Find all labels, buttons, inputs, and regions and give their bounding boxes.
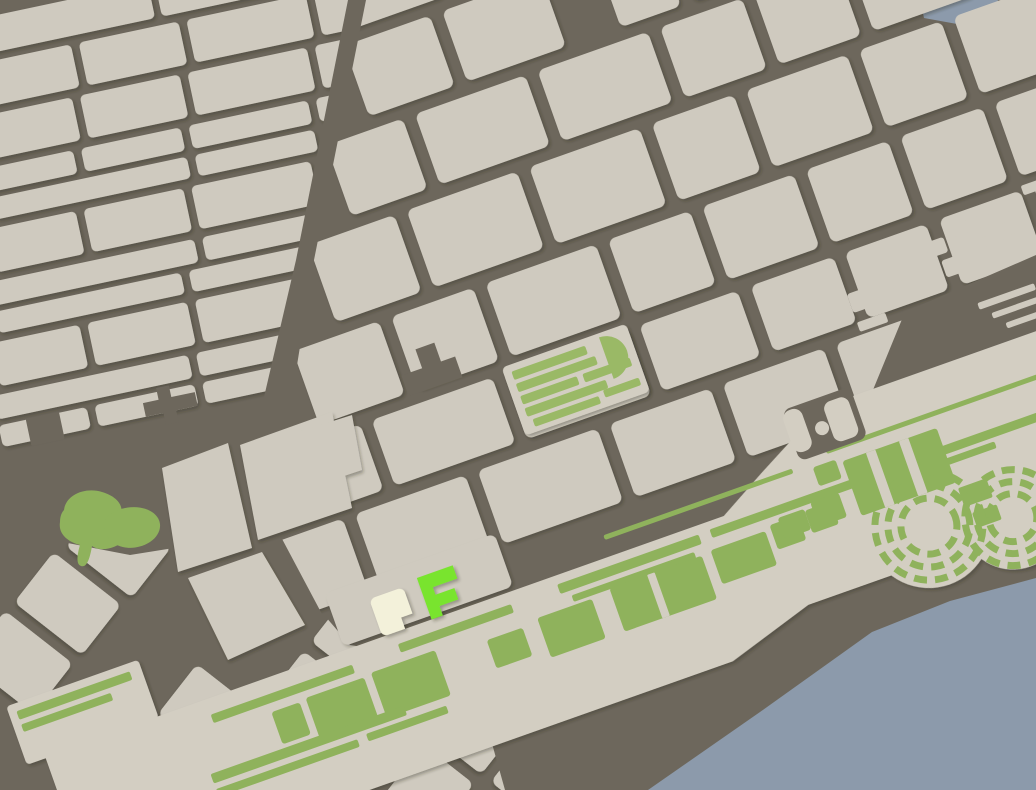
map-viewport[interactable] [0, 0, 1036, 790]
city-map [0, 0, 1036, 790]
